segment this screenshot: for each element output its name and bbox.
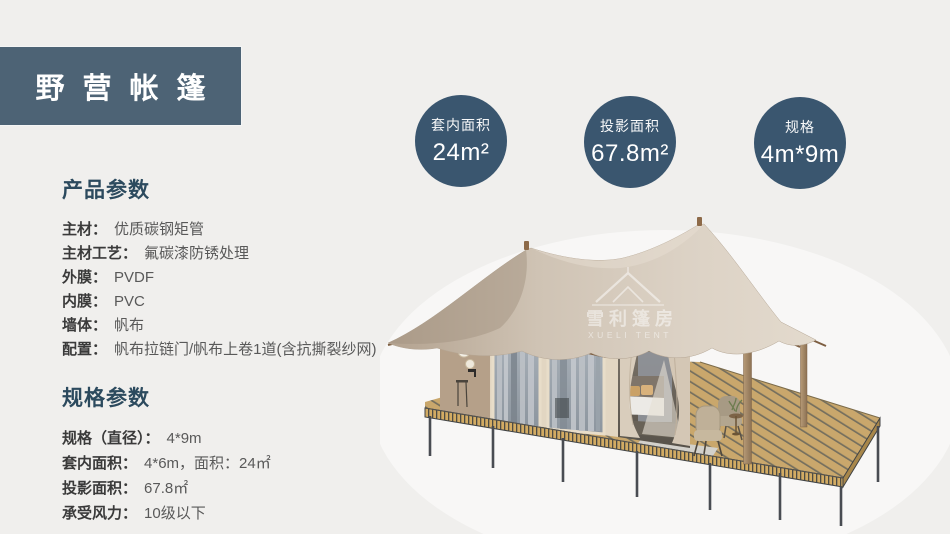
spec-row: 套内面积：4*6m，面积：24㎡ — [62, 451, 271, 476]
stat-label: 投影面积 — [600, 116, 660, 136]
title-banner: 野营帐篷 — [0, 46, 242, 126]
spec-row: 主材工艺：氟碳漆防锈处理 — [62, 242, 377, 266]
stat-circle-projection-area: 投影面积 67.8m² — [584, 96, 676, 188]
product-parameters-section: 产品参数 主材：优质碳钢矩管 主材工艺：氟碳漆防锈处理 外膜：PVDF 内膜：P… — [62, 174, 377, 362]
page-title: 野营帐篷 — [18, 65, 224, 107]
spec-label: 主材工艺： — [62, 245, 137, 262]
spec-value: 4*6m，面积：24㎡ — [144, 455, 271, 472]
spec-label: 规格（直径）： — [62, 430, 160, 447]
spec-value: 帆布拉链门/帆布上卷1道(含抗撕裂纱网) — [114, 341, 377, 358]
stat-value: 67.8m² — [591, 140, 669, 168]
spec-label: 墙体： — [62, 317, 107, 334]
stat-label: 规格 — [785, 117, 815, 137]
spec-value: 10级以下 — [144, 505, 206, 522]
spec-label: 配置： — [62, 341, 107, 358]
spec-value: 氟碳漆防锈处理 — [144, 245, 249, 262]
watermark-en-text: XUELI TENT — [588, 330, 672, 340]
spec-row: 外膜：PVDF — [62, 266, 377, 290]
spec-value: 帆布 — [114, 317, 144, 334]
spec-label: 承受风力： — [62, 505, 137, 522]
section-heading: 产品参数 — [62, 174, 377, 204]
spec-label: 主材： — [62, 221, 107, 238]
spec-row: 规格（直径）：4*9m — [62, 426, 271, 451]
size-parameters-section: 规格参数 规格（直径）：4*9m 套内面积：4*6m，面积：24㎡ 投影面积：6… — [62, 382, 271, 526]
spec-value: 4*9m — [167, 430, 202, 447]
tent-render-image: 雪利篷房 XUELI TENT — [380, 210, 950, 534]
spec-row: 投影面积：67.8㎡ — [62, 476, 271, 501]
spec-value: 优质碳钢矩管 — [114, 221, 204, 238]
spec-row: 墙体：帆布 — [62, 314, 377, 338]
stat-value: 24m² — [433, 139, 490, 167]
stat-circle-size: 规格 4m*9m — [754, 97, 846, 189]
spec-value: PVC — [114, 293, 145, 310]
stat-circle-inner-area: 套内面积 24m² — [415, 95, 507, 187]
watermark-cn-text: 雪利篷房 — [586, 308, 678, 329]
spec-row: 配置：帆布拉链门/帆布上卷1道(含抗撕裂纱网) — [62, 338, 377, 362]
spec-row: 承受风力：10级以下 — [62, 501, 271, 526]
spec-row: 内膜：PVC — [62, 290, 377, 314]
spec-label: 内膜： — [62, 293, 107, 310]
stat-label: 套内面积 — [431, 115, 491, 135]
spec-value: 67.8㎡ — [144, 480, 188, 497]
section-heading: 规格参数 — [62, 382, 271, 412]
spec-label: 投影面积： — [62, 480, 137, 497]
spec-label: 外膜： — [62, 269, 107, 286]
spec-row: 主材：优质碳钢矩管 — [62, 218, 377, 242]
stat-value: 4m*9m — [761, 141, 840, 169]
spec-label: 套内面积： — [62, 455, 137, 472]
spec-value: PVDF — [114, 269, 154, 286]
